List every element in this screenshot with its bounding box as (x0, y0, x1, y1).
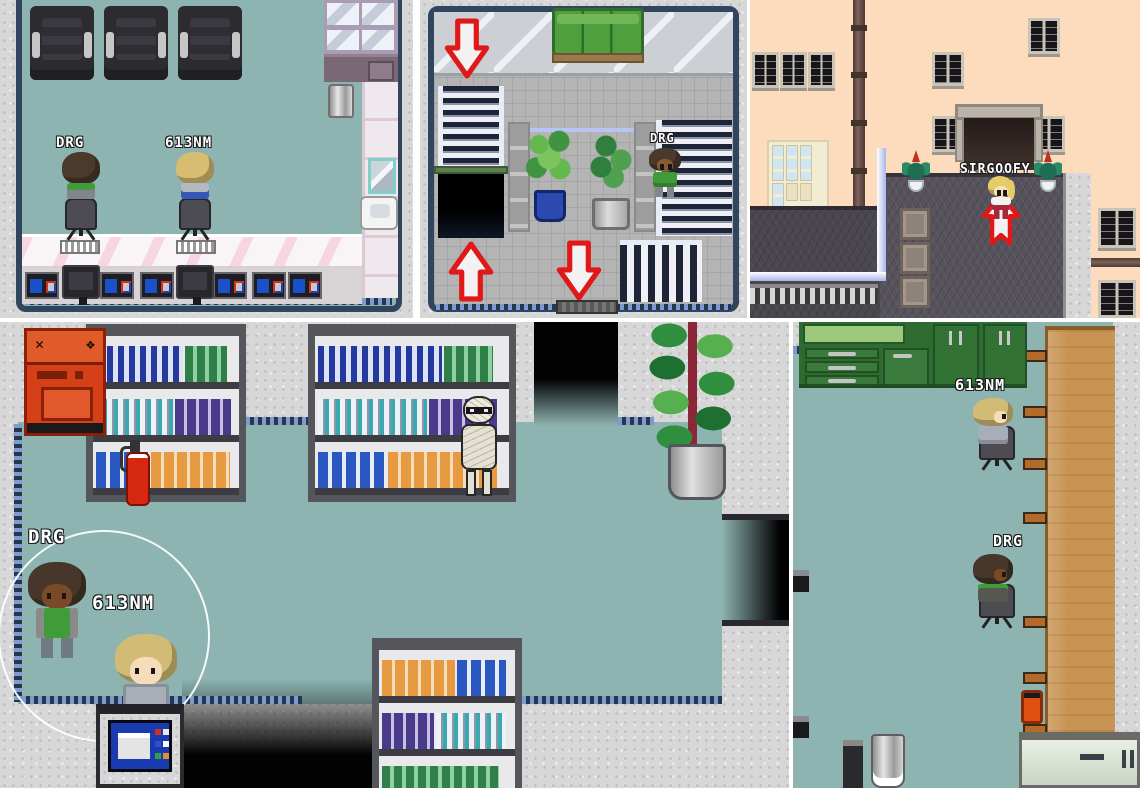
character-613nm[interactable] (174, 152, 216, 208)
eye (997, 190, 1001, 196)
monitor-stand (193, 297, 201, 305)
eye (135, 668, 139, 674)
glass-doors (767, 140, 829, 208)
entrance-pillar (955, 118, 964, 162)
window (932, 52, 964, 86)
control-unit (288, 272, 322, 299)
unit-screen (105, 279, 117, 293)
pipe-joint (851, 72, 867, 78)
armchair (30, 6, 94, 80)
shelf-row (93, 336, 239, 389)
fire-extinguisher[interactable] (114, 438, 158, 510)
nametag: 613NM (92, 594, 154, 613)
monitor (62, 265, 100, 299)
glass-pane (362, 3, 394, 25)
sofa-back (557, 14, 639, 24)
eye (151, 668, 155, 674)
screen-icons (155, 729, 169, 763)
unit-buttons (273, 281, 283, 293)
character-613nm[interactable] (971, 398, 1015, 452)
armrest (84, 32, 92, 58)
mummy-eye-band (466, 407, 492, 414)
wall-fixture (793, 570, 809, 592)
panel-street: SIRGOOFY (750, 0, 1140, 318)
panel-salon: DRG 613NM (0, 0, 413, 318)
machine-slot (37, 371, 67, 379)
potted-plant[interactable] (578, 132, 642, 234)
legs (994, 210, 1009, 219)
sink (360, 196, 398, 230)
escalator (620, 240, 702, 302)
nametag: DRG (56, 136, 84, 150)
eye (1002, 414, 1006, 419)
sink-basin (370, 204, 390, 218)
shelf-row (379, 756, 515, 788)
flower-plant (1034, 150, 1062, 194)
trash-bin[interactable] (871, 734, 905, 788)
stool-seat[interactable] (1023, 458, 1047, 470)
appliance-bar (1122, 750, 1126, 768)
pipe-joint (851, 168, 867, 174)
horizontal-pipe (1091, 258, 1140, 267)
cushion (190, 18, 230, 60)
keyboard (176, 240, 216, 254)
shelf-row (93, 389, 239, 442)
shelf-row (379, 703, 515, 756)
door-panel (786, 183, 798, 201)
torso (991, 197, 1010, 211)
tunnel-entrance (438, 174, 504, 238)
plant-leaves (902, 158, 930, 182)
flower-plant (902, 150, 930, 194)
armrest (106, 32, 114, 58)
armchair (178, 6, 242, 80)
dark-pipe (843, 740, 863, 788)
books (96, 346, 183, 382)
window (1028, 18, 1060, 54)
torso (36, 608, 78, 638)
crate (900, 276, 930, 308)
pipe-joint (851, 25, 867, 31)
unit-buttons (234, 281, 244, 293)
roof-railing (877, 148, 886, 280)
glass-pane (362, 30, 394, 50)
window (752, 52, 779, 88)
control-unit (140, 272, 174, 299)
monitor (176, 265, 214, 299)
diamond-icon: ❖ (86, 335, 95, 358)
armrest (232, 32, 240, 58)
books (175, 399, 231, 435)
counter-appliance (1019, 732, 1140, 788)
books (436, 713, 506, 749)
drain-pipe (853, 0, 865, 214)
eye (668, 164, 672, 170)
countertop (803, 324, 905, 344)
desk-drawer (368, 61, 394, 81)
drawer[interactable] (805, 375, 879, 386)
roof-fence (750, 284, 878, 304)
character-drg[interactable] (60, 152, 102, 208)
books (185, 346, 227, 382)
door-pane (786, 145, 798, 181)
hair (973, 554, 1013, 584)
control-unit (213, 272, 247, 299)
unit-screen (145, 279, 157, 293)
shelf-row (315, 336, 509, 389)
plant-pot (908, 180, 924, 192)
nametag: 613NM (955, 378, 1005, 393)
game-screenshot-collage: DRG 613NM (0, 0, 1140, 788)
screen-window (118, 733, 150, 759)
books (382, 766, 499, 788)
keyboard (60, 240, 100, 254)
arrow-up-icon[interactable] (448, 240, 494, 302)
escalator (438, 86, 504, 166)
binders (318, 452, 386, 488)
binders (151, 452, 229, 488)
machine-dot (75, 371, 83, 379)
drawer[interactable] (805, 361, 879, 372)
plant-pot-blue (534, 190, 566, 222)
shelf-row (379, 650, 515, 703)
nametag: 613NM (165, 136, 212, 150)
hair (62, 152, 101, 184)
computer-kiosk[interactable] (96, 704, 184, 788)
stool-seat[interactable] (1023, 616, 1047, 628)
door-pane (772, 145, 784, 181)
legs (656, 187, 674, 197)
plant-pot (668, 444, 726, 500)
drawer[interactable] (805, 348, 879, 359)
machine-door (41, 387, 93, 421)
stool-seat[interactable] (1023, 672, 1047, 684)
books (444, 346, 493, 382)
torso (978, 584, 1008, 602)
armrest (32, 32, 40, 58)
torso (181, 183, 210, 199)
hair (973, 398, 1013, 426)
character-sirgoofy[interactable] (987, 176, 1015, 220)
orange-canister (1021, 690, 1043, 724)
monitor-screen (69, 272, 93, 290)
extinguisher-body (126, 452, 150, 506)
extinguisher-nozzle (130, 440, 140, 452)
mirror (368, 158, 396, 194)
armchair (104, 6, 168, 80)
wooden-table (1045, 326, 1115, 784)
window (1098, 280, 1136, 318)
torso (67, 183, 96, 199)
cushion (116, 18, 156, 60)
unit-buttons (309, 281, 319, 293)
doormat (556, 300, 618, 314)
unit-buttons (46, 281, 56, 293)
plant-pot (1040, 180, 1056, 192)
monitor-screen (183, 272, 207, 290)
appliance-handle (1080, 754, 1104, 760)
green-sofa (552, 8, 644, 56)
plant-leaves (1034, 158, 1062, 182)
unit-screen (218, 279, 230, 293)
desk (324, 54, 398, 82)
bookshelf (372, 638, 522, 788)
binders (457, 660, 506, 696)
cushion (42, 18, 82, 60)
mummy-leg (466, 470, 476, 496)
nametag: DRG (650, 132, 675, 144)
mummy-body (461, 424, 497, 470)
pipe-joint (851, 120, 867, 126)
unit-buttons (121, 281, 131, 293)
wall-fixture (793, 716, 809, 738)
crate (900, 208, 930, 240)
stool-seat[interactable] (1023, 512, 1047, 524)
books (96, 399, 173, 435)
panel-archive: ✕❖ (0, 322, 789, 788)
drawer-stack (805, 348, 879, 386)
tall-potted-plant (648, 322, 736, 502)
unit-screen (257, 279, 269, 293)
panel-office: 613NM DRG (793, 322, 1140, 788)
stone-column (1063, 173, 1091, 318)
torso (653, 172, 676, 188)
eye (62, 593, 66, 599)
corridor-south-shadow (182, 678, 378, 788)
armrest (158, 32, 166, 58)
eye (47, 593, 51, 599)
arrow-down-icon[interactable] (556, 240, 602, 302)
plant-leaves (648, 322, 736, 456)
plant-pot-gray (592, 198, 630, 230)
glass-pane (327, 3, 359, 25)
door-pane (800, 145, 812, 181)
hair (176, 152, 215, 184)
nametag: SIRGOOFY (960, 163, 1031, 176)
potted-plant[interactable] (518, 128, 580, 228)
x-mark-icon: ✕ (35, 335, 44, 358)
books (382, 713, 434, 749)
bookshelf (86, 324, 246, 502)
sofa-base (552, 53, 644, 63)
nametag: DRG (993, 534, 1023, 549)
books (318, 399, 427, 435)
escalator-rail (434, 166, 508, 174)
mummy-leg (482, 470, 492, 496)
character-drg[interactable] (971, 554, 1015, 610)
unit-buttons (161, 281, 171, 293)
eye (1003, 190, 1007, 196)
binders (382, 660, 455, 696)
stone-edge (1113, 322, 1140, 788)
character-drg[interactable] (26, 562, 88, 660)
control-unit (25, 272, 59, 299)
door-panel (800, 183, 812, 201)
unit-screen (30, 279, 42, 293)
control-unit (252, 272, 286, 299)
plant-leaves (586, 132, 636, 202)
legs (41, 638, 73, 658)
character-drg[interactable] (648, 148, 682, 198)
window (780, 52, 807, 88)
eye (1002, 572, 1006, 577)
monitor-stand (79, 297, 87, 305)
torso (978, 426, 1008, 444)
wall-trim-top (246, 417, 310, 425)
nametag: DRG (28, 528, 65, 547)
control-unit (100, 272, 134, 299)
arrow-down-icon[interactable] (444, 18, 490, 80)
doorway-north[interactable] (534, 322, 618, 426)
plant-leaves (524, 128, 574, 194)
red-vending-machine[interactable]: ✕❖ (24, 328, 106, 436)
window (1098, 208, 1136, 248)
window (808, 52, 835, 88)
armrest (180, 32, 188, 58)
glass-pane (327, 30, 359, 50)
character-mummy[interactable] (456, 396, 502, 500)
glass-cabinet (324, 0, 398, 54)
crate (900, 242, 930, 274)
eye (660, 164, 664, 170)
books (318, 346, 442, 382)
stool-seat[interactable] (1023, 406, 1047, 418)
corridor-east[interactable] (722, 514, 789, 626)
unit-screen (293, 279, 305, 293)
panel-mall: DRG (420, 0, 747, 318)
cabinet-door[interactable] (883, 348, 929, 386)
machine-top-marks: ✕❖ (27, 331, 103, 365)
kiosk-screen (108, 720, 172, 772)
appliance-bar (1130, 750, 1134, 768)
trash-can (328, 84, 354, 118)
roof-railing (750, 272, 886, 281)
